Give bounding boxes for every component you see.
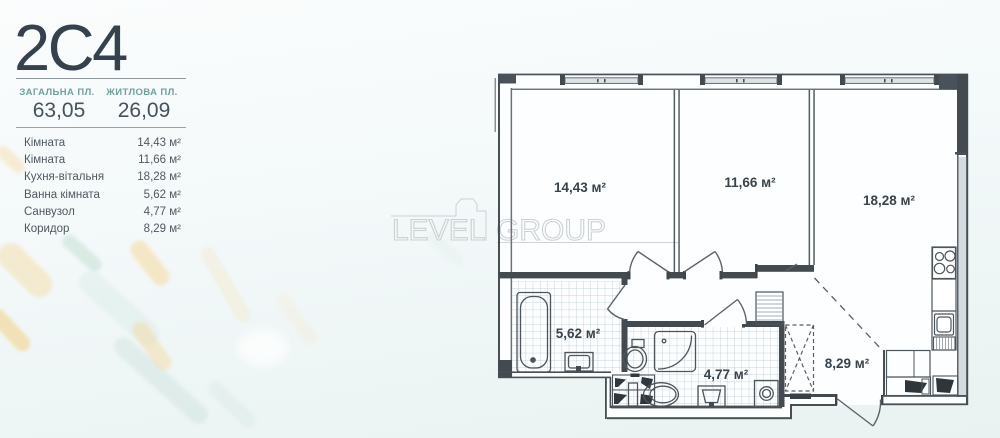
svg-text:8,29 м²: 8,29 м² bbox=[825, 356, 870, 371]
svg-text:LEVEL: LEVEL bbox=[392, 214, 485, 247]
svg-text:18,28 м²: 18,28 м² bbox=[863, 193, 916, 208]
svg-text:5,62 м²: 5,62 м² bbox=[556, 326, 601, 341]
svg-text:4,77 м²: 4,77 м² bbox=[704, 367, 749, 382]
svg-text:14,43 м²: 14,43 м² bbox=[554, 180, 607, 195]
svg-text:11,66 м²: 11,66 м² bbox=[724, 175, 776, 190]
